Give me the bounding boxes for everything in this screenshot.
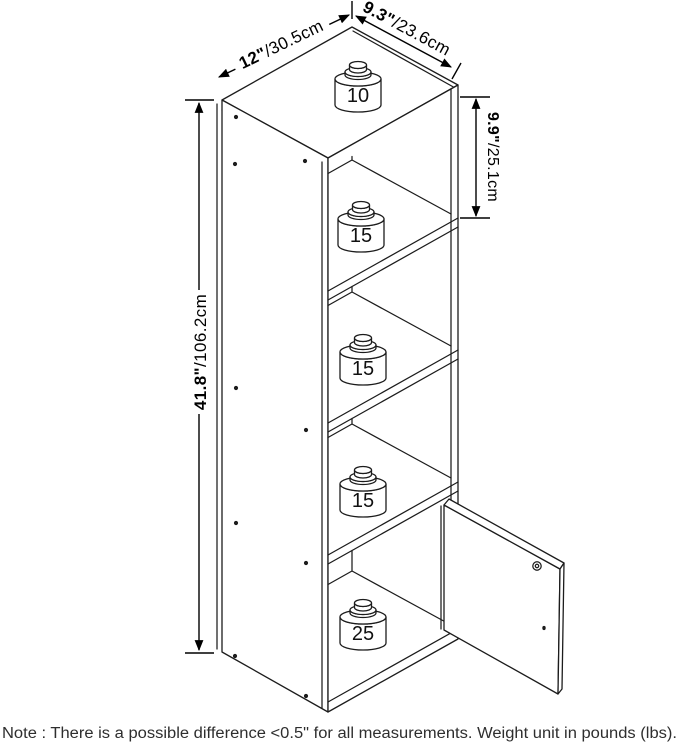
door-screw-dot <box>542 626 545 630</box>
bookcase-diagram-canvas: 10 15 15 15 <box>0 0 679 744</box>
weight-label-top: 10 <box>347 85 369 107</box>
side-panel <box>217 100 328 712</box>
bookcase-drawing: 10 15 15 15 <box>217 27 564 712</box>
door-open <box>441 499 564 694</box>
product-dimension-diagram: 10 15 15 15 <box>0 0 679 744</box>
dimension-overall-height: 41.8"/106.2cm <box>185 100 214 653</box>
dimension-compartment-height-label: 9.9"/25.1cm <box>484 112 501 202</box>
weight-label-shelf-3: 15 <box>352 490 374 512</box>
weight-label-bottom: 25 <box>352 623 374 645</box>
measurement-note: Note : There is a possible difference <0… <box>2 725 677 742</box>
dimension-overall-height-label: 41.8"/106.2cm <box>191 294 210 410</box>
dimension-compartment-height: 9.9"/25.1cm <box>460 97 501 218</box>
weight-label-shelf-1: 15 <box>350 225 372 247</box>
weight-label-shelf-2: 15 <box>352 358 374 380</box>
